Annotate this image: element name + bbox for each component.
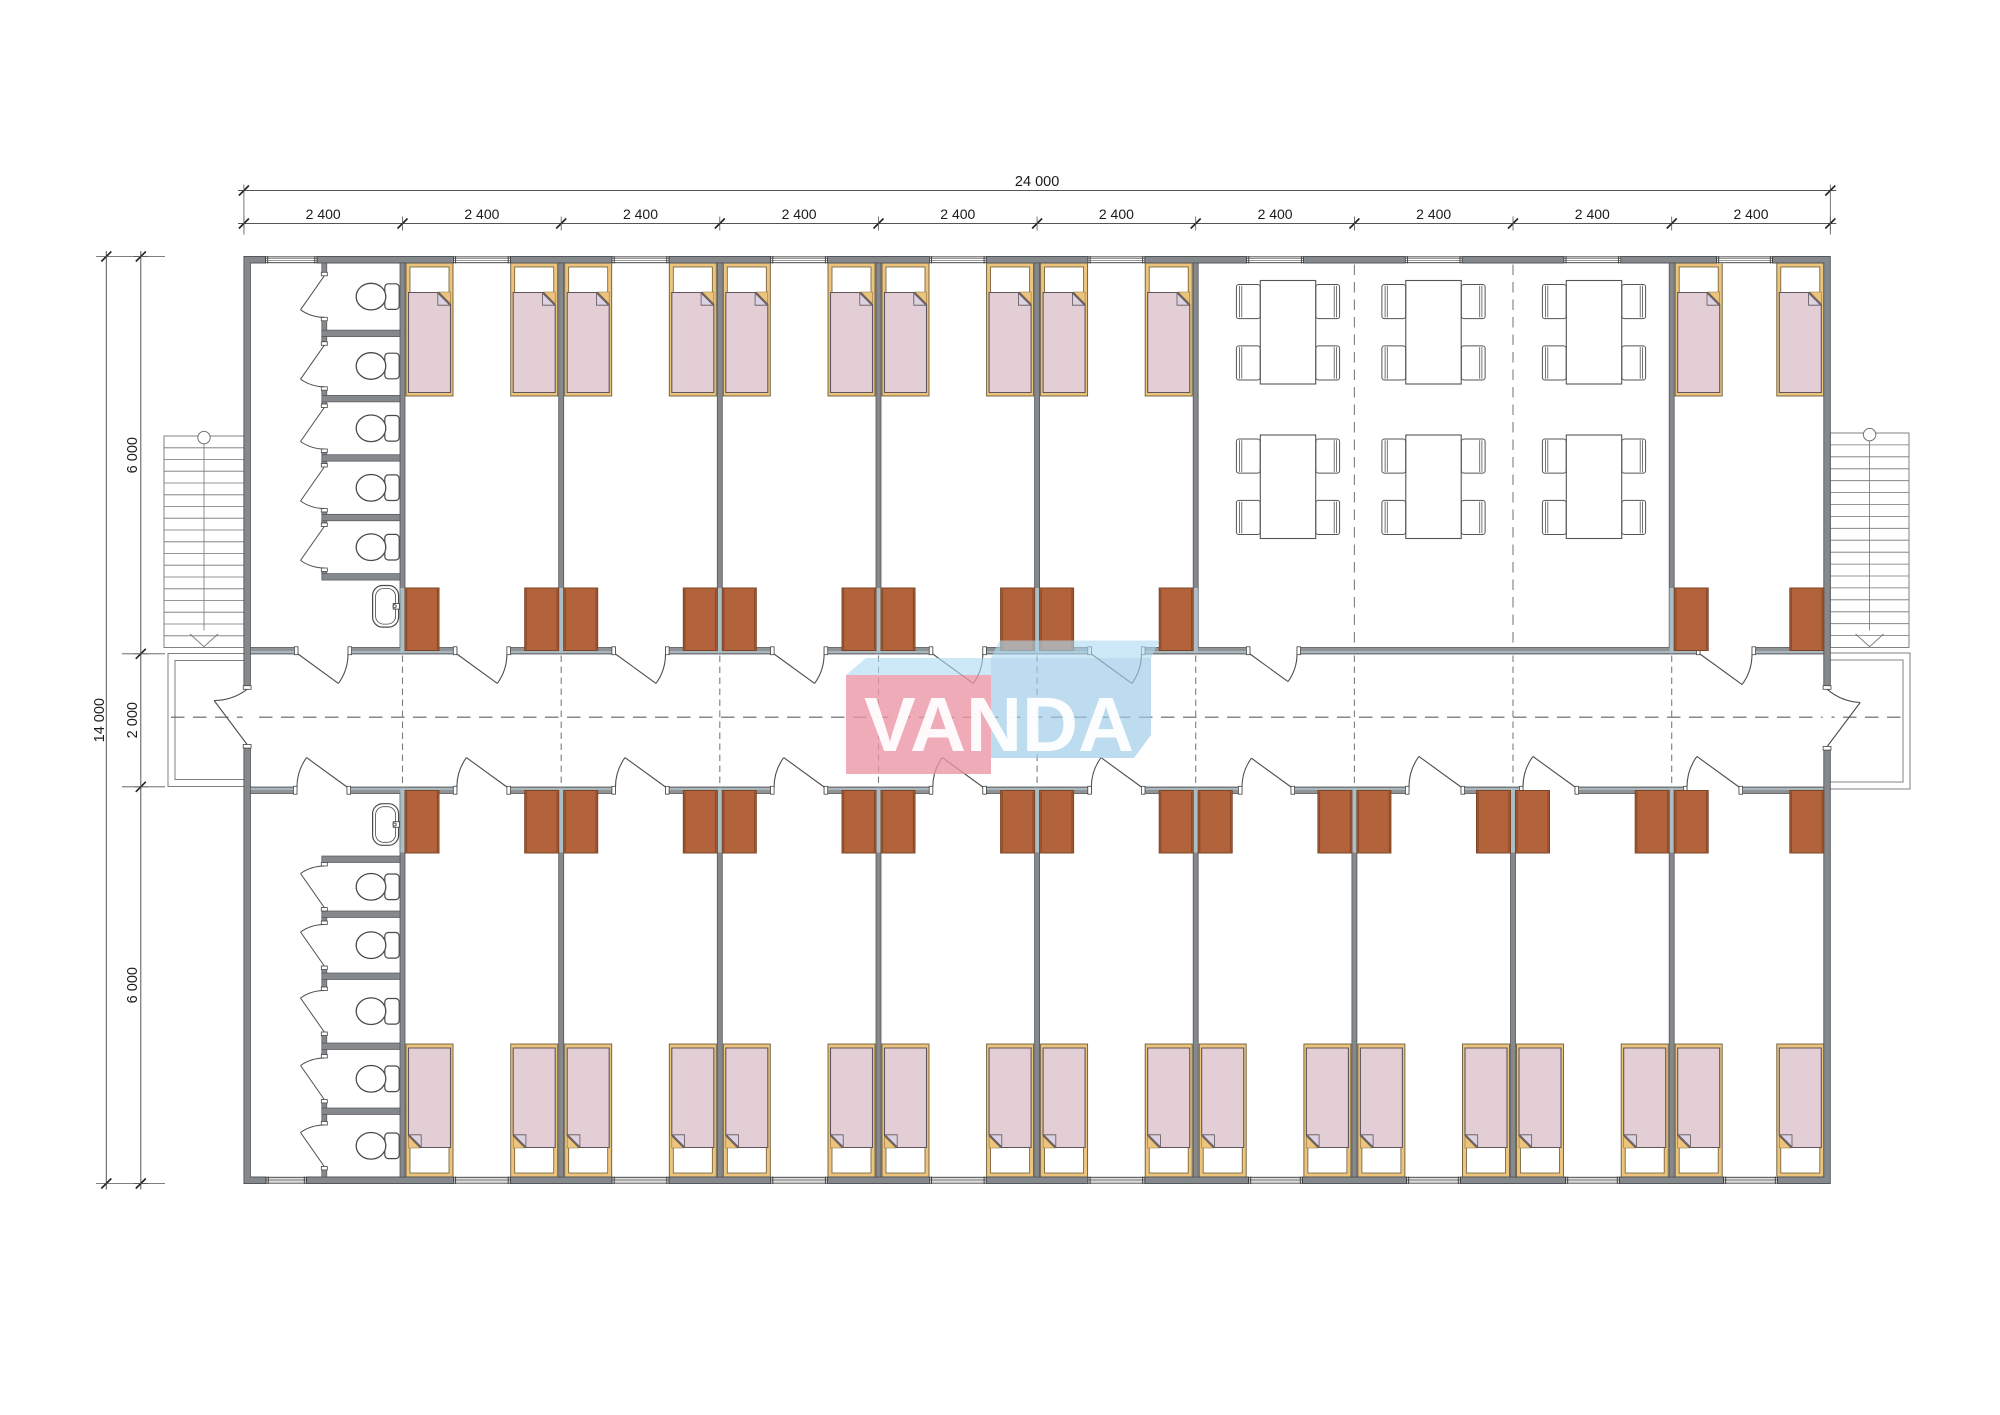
svg-text:2 000: 2 000 — [125, 702, 141, 738]
svg-text:2 400: 2 400 — [1733, 206, 1768, 222]
svg-text:6 000: 6 000 — [125, 967, 141, 1003]
svg-text:2 400: 2 400 — [782, 206, 817, 222]
svg-text:24 000: 24 000 — [1015, 174, 1059, 190]
svg-text:6 000: 6 000 — [125, 437, 141, 473]
svg-text:2 400: 2 400 — [1258, 206, 1293, 222]
svg-text:2 400: 2 400 — [1416, 206, 1451, 222]
svg-text:2 400: 2 400 — [306, 206, 341, 222]
svg-text:2 400: 2 400 — [464, 206, 499, 222]
svg-text:14 000: 14 000 — [92, 698, 108, 742]
svg-text:VANDA: VANDA — [864, 682, 1134, 768]
svg-text:2 400: 2 400 — [623, 206, 658, 222]
svg-text:2 400: 2 400 — [940, 206, 975, 222]
svg-text:2 400: 2 400 — [1575, 206, 1610, 222]
svg-text:2 400: 2 400 — [1099, 206, 1134, 222]
